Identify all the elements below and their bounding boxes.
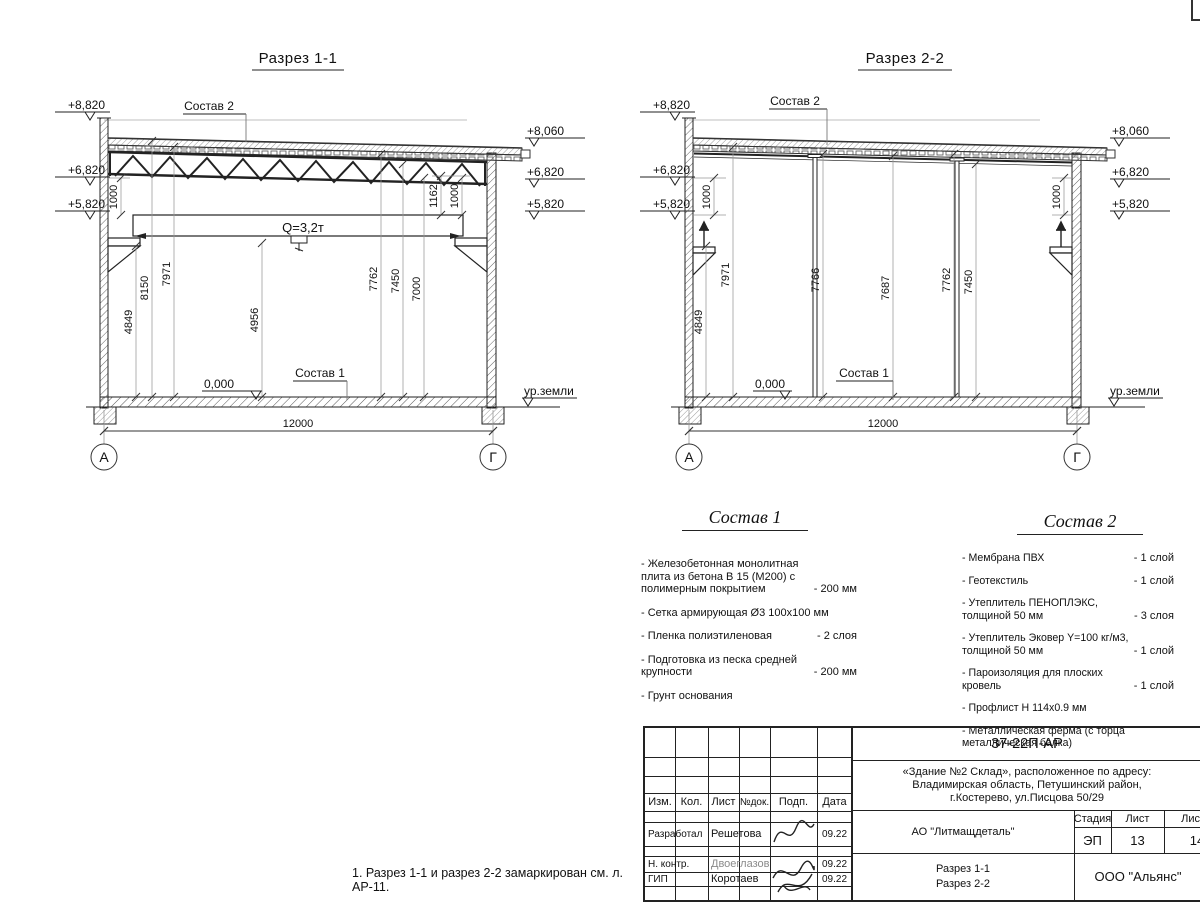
roof-callout: Состав 2 bbox=[183, 99, 246, 142]
grid-line bbox=[645, 776, 852, 777]
level-marks-right: +8,060 +6,820 +5,820 bbox=[525, 124, 585, 219]
floor-callout: Состав 1 bbox=[293, 366, 347, 400]
list-item: - Железобетонная монолитная плита из бет… bbox=[641, 558, 857, 596]
svg-text:+6,820: +6,820 bbox=[527, 165, 564, 179]
svg-text:Состав 2: Состав 2 bbox=[184, 99, 234, 113]
svg-text:Г: Г bbox=[489, 449, 497, 465]
svg-text:4849: 4849 bbox=[693, 310, 705, 334]
zero-level-mark: 0,000 bbox=[753, 377, 792, 399]
svg-text:+6,820: +6,820 bbox=[1112, 165, 1149, 179]
sostav1-title: Состав 1 bbox=[682, 507, 808, 531]
svg-text:А: А bbox=[684, 449, 694, 465]
svg-text:1000: 1000 bbox=[108, 185, 120, 209]
drawing-content: Разрез 1-1 Разрез 2-2 bbox=[852, 853, 1074, 900]
grid-axes: А Г bbox=[676, 444, 1090, 470]
title-block: Изм. Кол. Лист №док. Подп. Дата Разработ… bbox=[643, 726, 1200, 902]
crane-beam: Q=3,2т bbox=[133, 215, 463, 251]
span-dimension: 12000 bbox=[685, 410, 1081, 444]
date-cell: 09.22 bbox=[817, 856, 852, 872]
ground-level-mark: ур.земли bbox=[1108, 384, 1163, 406]
svg-text:7762: 7762 bbox=[941, 268, 953, 292]
col-header-ndok: №док. bbox=[739, 793, 770, 811]
svg-text:7687: 7687 bbox=[880, 276, 892, 300]
sheets-total-value: 14 bbox=[1164, 827, 1200, 853]
floor-slab bbox=[86, 397, 560, 424]
sheet-note: 1. Разрез 1-1 и разрез 2-2 замаркирован … bbox=[352, 866, 652, 894]
crane-capacity-label: Q=3,2т bbox=[282, 220, 324, 235]
grid-line bbox=[645, 846, 852, 847]
svg-text:7971: 7971 bbox=[720, 263, 732, 287]
col-header-kol: Кол. bbox=[675, 793, 708, 811]
svg-text:12000: 12000 bbox=[868, 418, 899, 430]
svg-text:1162: 1162 bbox=[428, 184, 440, 208]
crane-trolley-icon bbox=[291, 236, 307, 251]
list-item: - Грунт основания bbox=[641, 690, 857, 703]
svg-text:+5,820: +5,820 bbox=[1112, 197, 1149, 211]
svg-text:0,000: 0,000 bbox=[755, 377, 785, 391]
span-dimension: 12000 bbox=[100, 410, 497, 444]
name-cell: Коротаев bbox=[711, 872, 771, 886]
svg-text:1000: 1000 bbox=[449, 184, 461, 208]
svg-text:7450: 7450 bbox=[963, 270, 975, 294]
grid-line bbox=[645, 886, 852, 887]
floor-slab bbox=[671, 397, 1145, 424]
svg-text:7000: 7000 bbox=[411, 277, 423, 301]
list-item: - Пленка полиэтиленовая - 2 слоя bbox=[641, 630, 857, 643]
svg-text:1000: 1000 bbox=[1051, 185, 1063, 209]
col-header-izm: Изм. bbox=[645, 793, 675, 811]
date-cell: 09.22 bbox=[817, 822, 852, 846]
list-item: - Геотекстиль - 1 слой bbox=[962, 575, 1174, 588]
role-cell: ГИП bbox=[648, 872, 708, 886]
list-item: - Профлист Н 114х0.9 мм bbox=[962, 702, 1174, 715]
svg-text:12000: 12000 bbox=[283, 418, 314, 430]
svg-text:Разрез 1-1: Разрез 1-1 bbox=[259, 50, 338, 67]
drawing-sheet: { "page": { "note": "1. Разрез 1-1 и раз… bbox=[0, 0, 1200, 900]
svg-text:+6,820: +6,820 bbox=[653, 163, 690, 177]
list-item: - Утеплитель Эковер Y=100 кг/м3, толщино… bbox=[962, 632, 1174, 657]
list-item: - Мембрана ПВХ - 1 слой bbox=[962, 552, 1174, 565]
stage-value: ЭП bbox=[1074, 827, 1111, 853]
grid-line bbox=[708, 728, 709, 900]
svg-text:4849: 4849 bbox=[123, 310, 135, 334]
list-item: - Утеплитель ПЕНОПЛЭКС, толщиной 50 мм -… bbox=[962, 597, 1174, 622]
col-header-list: Лист bbox=[708, 793, 739, 811]
svg-text:А: А bbox=[99, 449, 109, 465]
list-item: - Сетка армирующая Ø3 100х100 мм bbox=[641, 607, 857, 620]
svg-text:+8,820: +8,820 bbox=[68, 98, 105, 112]
client-company: АО "Литмащдеталь" bbox=[852, 810, 1074, 853]
name-cell: Двоеглазов bbox=[711, 856, 771, 872]
consoles bbox=[693, 247, 1072, 275]
svg-text:4956: 4956 bbox=[249, 308, 261, 332]
name-cell: Решетова bbox=[711, 822, 769, 846]
svg-text:+8,820: +8,820 bbox=[653, 98, 690, 112]
section-1-1-drawing: Разрез 1-1 Q=3,2т bbox=[40, 40, 615, 485]
zero-level-mark: 0,000 bbox=[202, 377, 262, 399]
list-item: - Подготовка из песка средней крупности … bbox=[641, 654, 857, 679]
svg-text:7971: 7971 bbox=[161, 262, 173, 286]
side-dimensions: 1000 1000 bbox=[694, 174, 1072, 219]
sheet-label: Лист bbox=[1111, 810, 1164, 827]
roof-callout: Состав 2 bbox=[769, 94, 827, 145]
role-cell: Разработал bbox=[648, 822, 708, 846]
svg-text:7762: 7762 bbox=[368, 267, 380, 291]
svg-text:+8,060: +8,060 bbox=[1112, 124, 1149, 138]
svg-text:1000: 1000 bbox=[701, 185, 713, 209]
svg-text:+5,820: +5,820 bbox=[653, 197, 690, 211]
svg-text:+5,820: +5,820 bbox=[68, 197, 105, 211]
svg-text:8150: 8150 bbox=[139, 276, 151, 300]
grid-line bbox=[645, 757, 852, 758]
stage-label: Стадия bbox=[1074, 810, 1111, 827]
grid-line bbox=[645, 811, 852, 812]
col-header-podp: Подп. bbox=[770, 793, 817, 811]
col-header-data: Дата bbox=[817, 793, 852, 811]
vertical-dimensions: 4849 7971 7766 7687 7762 7450 bbox=[693, 143, 980, 401]
svg-text:+6,820: +6,820 bbox=[68, 163, 105, 177]
signature-strokes bbox=[770, 816, 817, 900]
section-2-2-drawing: Разрез 2-2 bbox=[625, 40, 1200, 485]
svg-text:ур.земли: ур.земли bbox=[524, 384, 574, 398]
project-description: «Здание №2 Склад», расположенное по адре… bbox=[852, 760, 1200, 810]
svg-text:Состав 1: Состав 1 bbox=[295, 366, 345, 380]
svg-text:Состав 2: Состав 2 bbox=[770, 94, 820, 108]
svg-text:0,000: 0,000 bbox=[204, 377, 234, 391]
svg-text:7766: 7766 bbox=[810, 268, 822, 292]
design-org: ООО "Альянс" bbox=[1074, 853, 1200, 900]
section2-title: Разрез 2-2 bbox=[858, 50, 952, 70]
sheets-total-label: Листов bbox=[1164, 810, 1200, 827]
doc-code: 37-22П-АР bbox=[852, 728, 1200, 760]
section1-title: Разрез 1-1 bbox=[252, 50, 344, 70]
floor-callout: Состав 1 bbox=[836, 366, 893, 400]
sostav1-list: - Железобетонная монолитная плита из бет… bbox=[641, 558, 857, 713]
date-cell: 09.22 bbox=[817, 872, 852, 886]
sostav2-title: Состав 2 bbox=[1017, 511, 1143, 535]
svg-text:7450: 7450 bbox=[390, 269, 402, 293]
grid-axes: А Г bbox=[91, 444, 506, 470]
svg-text:ур.земли: ур.земли bbox=[1110, 384, 1160, 398]
svg-text:Состав 1: Состав 1 bbox=[839, 366, 889, 380]
svg-text:Разрез 2-2: Разрез 2-2 bbox=[866, 50, 945, 67]
svg-text:+8,060: +8,060 bbox=[527, 124, 564, 138]
sheet-frame-corner bbox=[1191, 0, 1200, 21]
role-cell: Н. контр. bbox=[648, 856, 708, 872]
sheet-number: 13 bbox=[1111, 827, 1164, 853]
ground-level-mark: ур.земли bbox=[522, 384, 577, 406]
level-marks-right: +8,060 +6,820 +5,820 bbox=[1110, 124, 1170, 219]
list-item: - Пароизоляция для плоских кровель - 1 с… bbox=[962, 667, 1174, 692]
svg-text:+5,820: +5,820 bbox=[527, 197, 564, 211]
anchor-bolt-icons bbox=[699, 222, 1066, 247]
svg-text:Г: Г bbox=[1073, 449, 1081, 465]
